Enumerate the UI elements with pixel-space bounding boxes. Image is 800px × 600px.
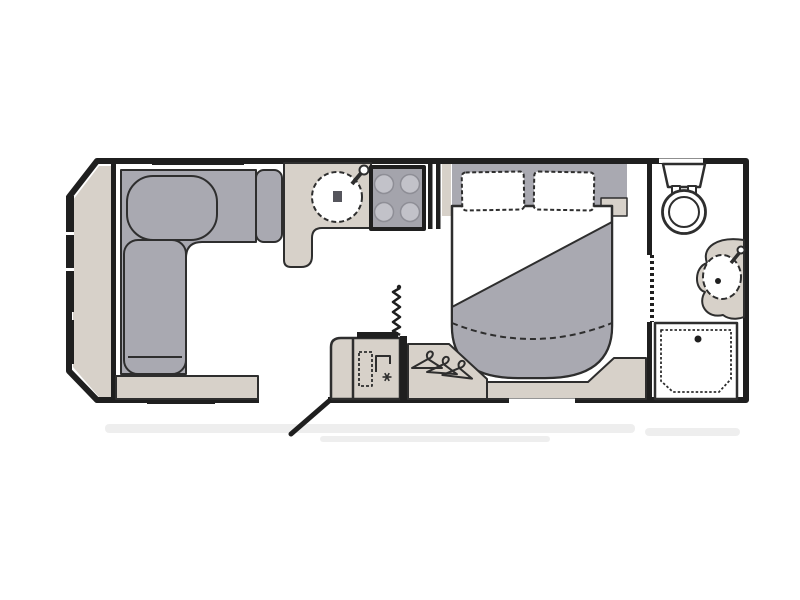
cabinet-worktop-flap — [357, 332, 398, 338]
scan-smudge — [105, 424, 635, 433]
kitchen-partition-wall — [428, 163, 433, 229]
window-top-lounge — [152, 158, 244, 165]
tap-head-icon — [360, 166, 369, 175]
washroom-wall-upper — [647, 163, 652, 255]
front-window-lower — [66, 320, 74, 364]
burner — [401, 175, 420, 194]
bed-head-cabinet — [442, 164, 451, 216]
toilet-icon — [663, 164, 706, 234]
sink-drain-icon — [333, 191, 342, 202]
toilet-cistern — [663, 164, 705, 187]
front-window — [66, 196, 74, 312]
entry-doorway-opening — [259, 396, 328, 406]
shower-drain — [695, 336, 702, 343]
sofa-base — [116, 376, 258, 399]
flue-cap — [397, 285, 401, 289]
pillow-left — [462, 171, 525, 210]
window-bottom-bedroom — [509, 399, 575, 404]
shelf-divider-wall — [111, 163, 116, 400]
front-window-hatch — [66, 232, 74, 235]
sofa-corner-cushion — [127, 176, 217, 240]
caravan-floorplan — [0, 0, 800, 600]
scan-smudge — [320, 436, 550, 442]
burner — [375, 175, 394, 194]
fridge-cabinet — [331, 338, 400, 399]
scan-artifacts — [105, 424, 740, 442]
pillow-right — [534, 171, 595, 210]
front-window-hatch — [66, 268, 74, 271]
shower-tray-icon — [655, 323, 737, 399]
washroom-wall-lower — [647, 322, 652, 400]
sofa-end-cushion — [256, 170, 282, 242]
burner — [375, 203, 394, 222]
sofa-seat-cushion — [124, 240, 186, 374]
bedroom-partition-wall — [436, 163, 441, 229]
wardrobe-wall — [400, 336, 407, 400]
floorplan-canvas — [0, 0, 800, 600]
basin-drain — [715, 278, 721, 284]
front-shelf — [73, 166, 112, 397]
window-top-washroom — [659, 159, 703, 164]
basin-bowl — [703, 255, 741, 299]
basin-tap-head — [738, 247, 745, 254]
scan-smudge — [645, 428, 740, 436]
burner — [401, 203, 420, 222]
